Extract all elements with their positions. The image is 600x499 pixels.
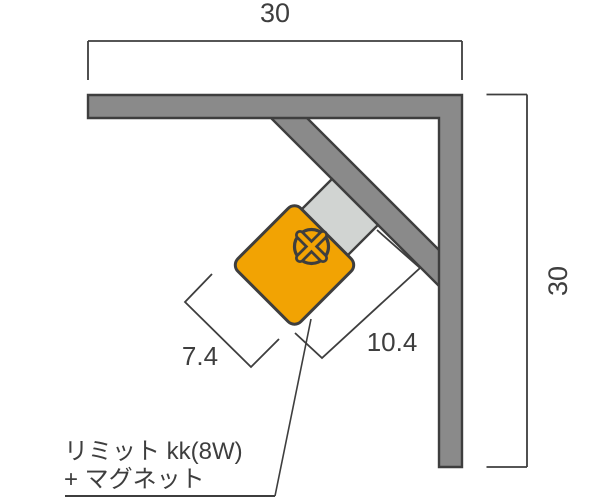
dimension-top-value: 30	[260, 0, 290, 28]
dimension-right-linework	[487, 95, 528, 468]
corner-bracket-limit-switch-diagram: 30 30 7.4 10.4 リミット kk(8W) + マグネット	[0, 0, 600, 499]
dimension-7-4-value: 7.4	[182, 341, 218, 371]
label-leader-line	[275, 319, 311, 496]
switch-label-line2: + マグネット	[64, 466, 205, 493]
technical-drawing-canvas: 30 30 7.4 10.4 リミット kk(8W) + マグネット	[0, 0, 600, 499]
dimension-10-4-value: 10.4	[367, 327, 418, 357]
dimension-right-value: 30	[543, 266, 573, 296]
switch-label-line1: リミット kk(8W)	[64, 438, 243, 465]
dimension-top-linework	[88, 41, 462, 80]
